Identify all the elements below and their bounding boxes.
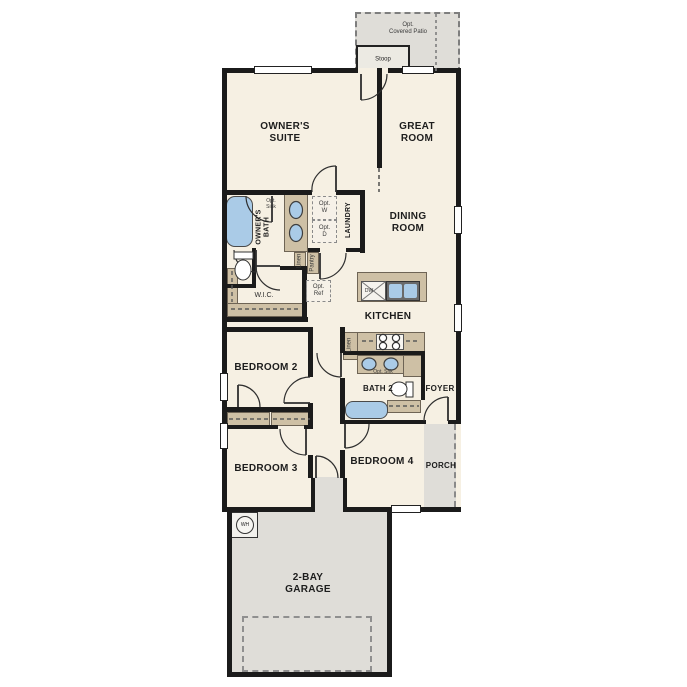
wall [418, 420, 426, 424]
label-opt-snk: Opt. Snk [373, 369, 392, 375]
wall [222, 284, 256, 288]
wall [340, 378, 345, 424]
garage-bay-outline [242, 616, 372, 672]
window [454, 304, 462, 332]
wall [222, 317, 308, 322]
owners-bath-tub [226, 196, 253, 247]
patio-label: Opt. Covered Patio [389, 22, 427, 36]
window [402, 66, 434, 74]
island-sink-bowl-right [404, 284, 417, 298]
range [376, 334, 404, 350]
owners-bath-vanity [284, 194, 308, 252]
window [254, 66, 312, 74]
wall [340, 327, 345, 353]
label-opt-sink: Opt. Sink [266, 198, 276, 210]
bedroom2-closet-right [271, 412, 312, 426]
wall [222, 190, 312, 195]
wall [227, 672, 392, 677]
window [220, 423, 228, 449]
label-dishwasher: DW [365, 288, 373, 294]
floor-plan: Opt. Covered Patio Stoop [0, 0, 687, 687]
bedroom2-closet-left [227, 412, 270, 426]
wall [360, 190, 365, 253]
bath2-tub [345, 401, 388, 419]
wall [387, 512, 392, 677]
label-linen-hall: Linen [296, 254, 303, 269]
room-label-bedroom3: BEDROOM 3 [234, 463, 297, 475]
room-label-kitchen: KITCHEN [365, 311, 412, 323]
room-label-wic: W.I.C. [254, 292, 273, 300]
label-pantry: Pantry [309, 254, 316, 271]
wall [222, 425, 278, 429]
optional-dryer-box: Opt. D [312, 220, 337, 243]
bath2-cabinet [403, 355, 422, 377]
wall [311, 478, 315, 512]
optional-washer-box: Opt. W [312, 196, 337, 220]
room-label-porch: PORCH [426, 461, 456, 471]
room-label-owners-bath: OWNER'S BATH [256, 209, 273, 244]
wall [308, 327, 313, 377]
wall [308, 412, 313, 427]
window [220, 373, 228, 401]
wall [308, 455, 313, 478]
room-label-great-room: GREAT ROOM [399, 121, 435, 145]
room-label-foyer: FOYER [425, 384, 454, 394]
label-water-heater: WH [241, 522, 249, 528]
wall [222, 327, 313, 332]
wall [222, 407, 313, 412]
bedroom4-closet [387, 400, 421, 413]
island-sink [386, 281, 420, 301]
wall [456, 68, 461, 424]
optional-fridge-label: Opt. Ref [313, 284, 324, 297]
wall [222, 507, 315, 512]
wall [252, 248, 256, 286]
room-label-garage: 2-BAY GARAGE [285, 572, 331, 596]
wall [421, 351, 425, 400]
room-label-owners-suite: OWNER'S SUITE [260, 121, 309, 145]
wall [377, 68, 382, 168]
room-label-bath2: BATH 2 [363, 384, 393, 394]
window [454, 206, 462, 234]
room-label-laundry: LAUNDRY [345, 202, 353, 238]
wall [343, 351, 425, 355]
wall [346, 248, 365, 252]
wic-shelf-bottom [227, 303, 303, 317]
optional-dryer-label: Opt. D [319, 225, 330, 238]
room-label-bedroom2: BEDROOM 2 [234, 362, 297, 374]
wall [343, 420, 418, 424]
wall [227, 512, 232, 677]
optional-washer-label: Opt. W [319, 201, 330, 214]
stoop-label: Stoop [375, 56, 391, 63]
optional-fridge-box: Opt. Ref [306, 280, 331, 302]
wall [448, 420, 461, 424]
island-sink-bowl-left [389, 284, 402, 298]
wall [343, 478, 347, 512]
wall [340, 450, 345, 478]
room-label-bedroom4: BEDROOM 4 [350, 456, 413, 468]
wall [308, 248, 320, 252]
label-linen-kitchen: Linen [346, 338, 353, 353]
room-label-dining: DINING ROOM [390, 211, 427, 235]
window [391, 505, 421, 513]
